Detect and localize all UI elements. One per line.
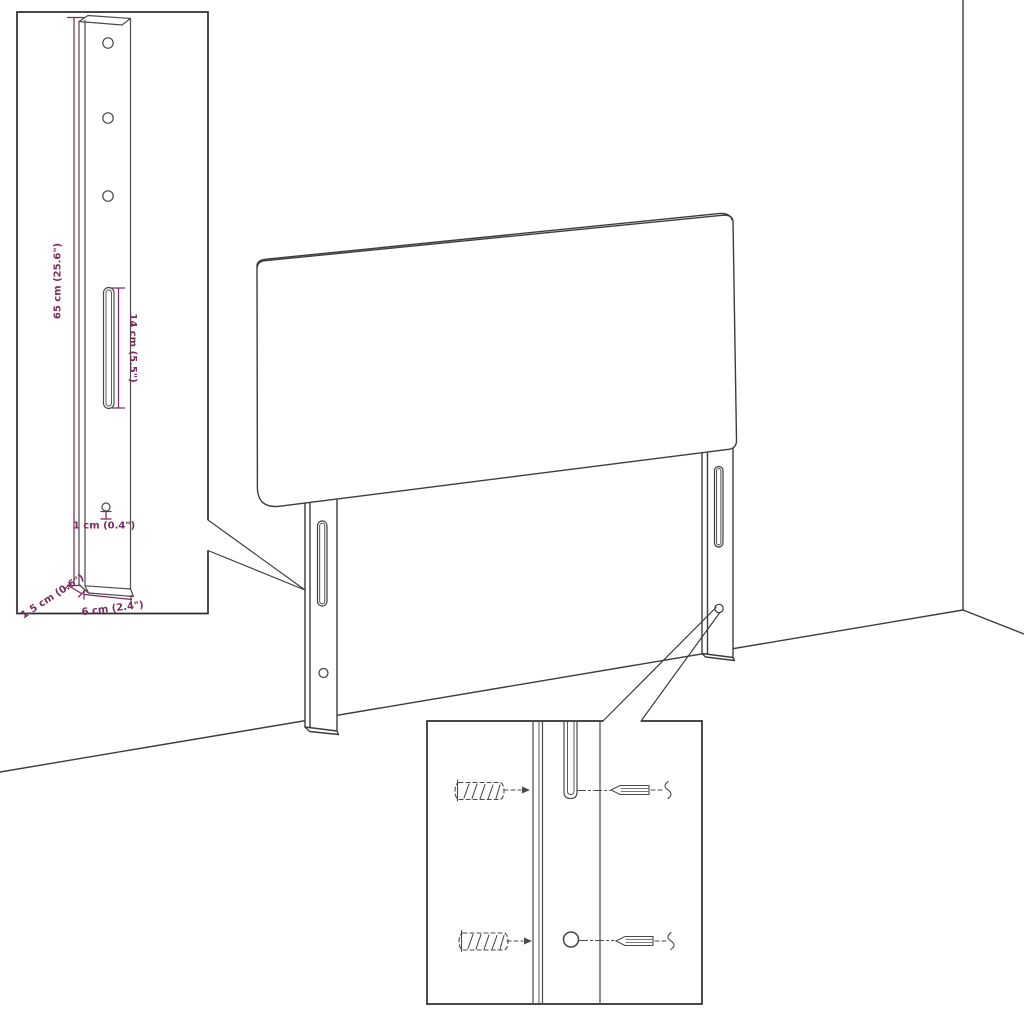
product-diagram: 65 cm (25.6") 14 cm (5.5") 1 cm (0.4") 1…	[0, 0, 1024, 1024]
floor-line-right	[963, 610, 1024, 634]
hardware-row-top	[455, 780, 671, 801]
wall-plug-icon	[459, 931, 508, 952]
left-leg	[305, 466, 339, 735]
mounting-slot-inner	[568, 721, 575, 795]
plug-arrowhead-top	[522, 787, 530, 794]
diagram-svg: 65 cm (25.6") 14 cm (5.5") 1 cm (0.4") 1…	[0, 0, 1024, 1024]
dim-label-hole-diameter: 1 cm (0.4")	[73, 521, 135, 532]
mounting-hole	[564, 932, 579, 947]
leg-inset-callout-line-top	[208, 520, 305, 590]
wall-plug-icon	[455, 780, 504, 801]
headboard	[257, 213, 737, 506]
mounting-callout-line-left	[603, 608, 716, 722]
mounting-leg-strip	[533, 721, 600, 1004]
screw-icon	[616, 933, 674, 950]
mounting-detail-inset	[427, 608, 720, 1005]
dim-label-leg-height: 65 cm (25.6")	[53, 243, 64, 319]
mounting-callout-line-right	[641, 613, 720, 721]
dim-label-slot-length: 14 cm (5.5")	[127, 313, 138, 382]
screw-icon	[611, 782, 671, 799]
plug-arrowhead-bottom	[524, 938, 532, 945]
leg-detail-drawing	[79, 16, 134, 597]
right-leg	[702, 436, 735, 661]
dim-label-leg-width: 6 cm (2.4")	[81, 600, 144, 619]
floor-line-left	[0, 610, 963, 772]
mounting-slot	[564, 721, 577, 799]
leg-inset-callout-line-bottom	[208, 551, 305, 591]
headboard-front-face	[257, 215, 737, 506]
